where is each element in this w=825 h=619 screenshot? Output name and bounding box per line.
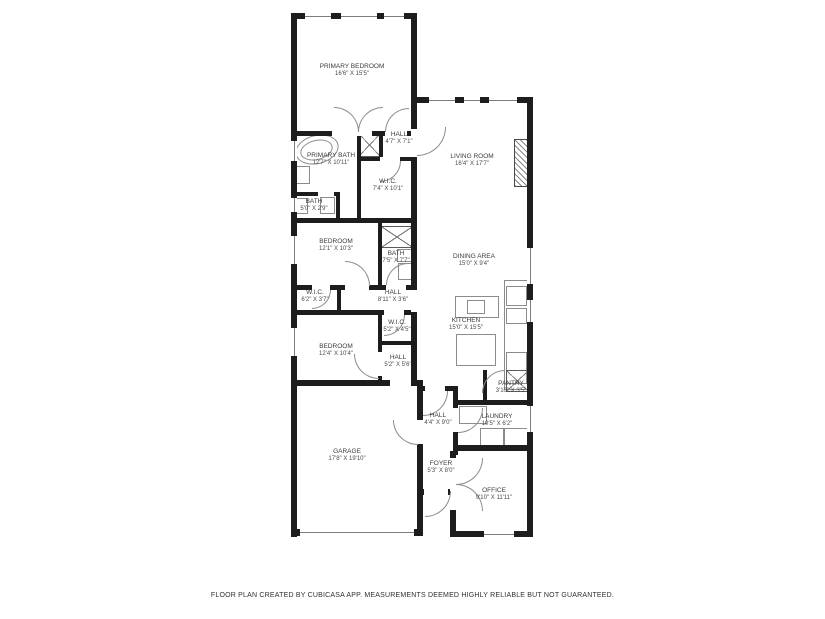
wall-segment	[411, 13, 417, 385]
room-dims: 12'4" X 10'4"	[319, 351, 353, 359]
room-label-wic-mid: W.I.C. 5'2" X 4'5"	[383, 319, 410, 335]
room-label-living-room: LIVING ROOM 16'4" X 17'7"	[450, 153, 493, 169]
room-name: PANTRY	[496, 380, 527, 388]
room-name: DINING AREA	[453, 253, 495, 261]
room-label-primary-bath: PRIMARY BATH 12'7" X 10'11"	[307, 152, 355, 168]
window	[429, 97, 455, 103]
room-name: BATH	[300, 198, 327, 206]
room-dims: 4'4" X 9'0"	[424, 420, 451, 428]
room-name: W.I.C.	[383, 319, 410, 327]
room-name: LIVING ROOM	[450, 153, 493, 161]
room-dims: 7'5" X 7'7"	[382, 258, 409, 266]
window	[291, 236, 297, 264]
room-dims: 12'1" X 10'3"	[319, 246, 353, 254]
room-label-bath-mid: BATH 7'5" X 7'7"	[382, 250, 409, 266]
room-dims: 17'8" X 19'10"	[328, 456, 365, 464]
room-name: HALL	[378, 289, 408, 297]
wall-segment	[291, 13, 297, 537]
kitchen-island	[456, 334, 496, 366]
window	[291, 198, 297, 212]
door-opening	[318, 192, 334, 196]
room-dims: 15'0" X 15'5"	[449, 325, 483, 333]
room-name: W.I.C.	[373, 178, 404, 186]
room-label-wic-primary: W.I.C. 7'4" X 10'1"	[373, 178, 404, 194]
door-arc	[334, 107, 359, 132]
room-name: HALL	[385, 131, 412, 139]
room-label-pantry: PANTRY 3'10" X 3'5"	[496, 380, 527, 396]
room-name: W.I.C.	[301, 289, 328, 297]
room-label-foyer: FOYER 5'3" X 8'0"	[427, 460, 454, 476]
shower	[381, 226, 413, 248]
room-dims: 3'10" X 3'5"	[496, 388, 527, 396]
room-label-primary-bedroom: PRIMARY BEDROOM 16'6" X 15'5"	[320, 63, 385, 79]
room-name: LAUNDRY	[482, 413, 513, 421]
disclaimer-text: FLOOR PLAN CREATED BY CUBICASA APP. MEAS…	[0, 592, 825, 599]
wall-segment	[379, 133, 383, 159]
window	[464, 97, 480, 103]
window	[291, 141, 297, 161]
room-name: PRIMARY BEDROOM	[320, 63, 385, 71]
room-dims: 16'4" X 17'7"	[450, 161, 493, 169]
room-label-bedroom-lower: BEDROOM 12'4" X 10'4"	[319, 343, 353, 359]
room-name: OFFICE	[476, 487, 512, 495]
room-name: FOYER	[427, 460, 454, 468]
door-arc	[393, 420, 418, 445]
room-name: BATH	[382, 250, 409, 258]
room-dims: 4'7" X 7'1"	[385, 139, 412, 147]
garage-door	[300, 529, 414, 536]
room-label-garage: GARAGE 17'8" X 19'10"	[328, 448, 365, 464]
room-dims: 12'7" X 10'11"	[307, 160, 355, 168]
door-arc	[385, 108, 409, 132]
window	[527, 406, 533, 432]
window	[384, 13, 404, 19]
door-arc	[417, 127, 446, 156]
window	[527, 300, 533, 322]
room-label-hall-bottom: HALL 4'4" X 9'0"	[424, 412, 451, 428]
room-label-hall-lower: HALL 5'2" X 5'6"	[384, 354, 411, 370]
room-dims: 8'11" X 3'6"	[378, 297, 408, 305]
room-label-laundry: LAUNDRY 10'5" X 6'2"	[482, 413, 513, 429]
door-arc	[354, 354, 379, 379]
window	[341, 13, 377, 19]
room-label-office: OFFICE 9'10" X 11'11"	[476, 487, 512, 503]
kitchen-appliance	[506, 286, 527, 306]
room-dims: 15'0" X 9'4"	[453, 261, 495, 269]
door-arc	[456, 458, 483, 485]
room-name: HALL	[424, 412, 451, 420]
washer	[480, 428, 504, 446]
room-name: KITCHEN	[449, 317, 483, 325]
window	[484, 531, 514, 537]
door-opening	[390, 380, 411, 386]
room-dims: 5'2" X 5'6"	[384, 362, 411, 370]
wall-segment	[378, 341, 415, 345]
floor-plan: PRIMARY BEDROOM 16'6" X 15'5" HALL 4'7" …	[0, 0, 825, 619]
room-dims: 5'0" X 2'9"	[300, 206, 327, 214]
room-dims: 5'3" X 8'0"	[427, 468, 454, 476]
kitchen-appliance	[506, 308, 527, 324]
window	[291, 328, 297, 356]
dryer	[504, 428, 528, 446]
room-name: PRIMARY BATH	[307, 152, 355, 160]
room-label-bedroom-mid: BEDROOM 12'1" X 10'3"	[319, 238, 353, 254]
window	[305, 13, 331, 19]
window	[527, 248, 533, 284]
shower	[358, 133, 381, 157]
wall-segment	[291, 218, 417, 223]
room-label-hall-mid: HALL 8'11" X 3'6"	[378, 289, 408, 305]
door-arc	[345, 261, 370, 286]
room-label-hall-upper: HALL 4'7" X 7'1"	[385, 131, 412, 147]
door-opening	[411, 290, 417, 312]
wall-segment	[357, 136, 361, 218]
room-name: GARAGE	[328, 448, 365, 456]
room-label-kitchen: KITCHEN 15'0" X 15'5"	[449, 317, 483, 333]
window	[489, 97, 517, 103]
room-dims: 16'6" X 15'5"	[320, 71, 385, 79]
room-dims: 6'2" X 3'7"	[301, 297, 328, 305]
door-arc	[358, 107, 383, 132]
room-name: BEDROOM	[319, 343, 353, 351]
wall-segment	[453, 400, 533, 405]
door-arc	[425, 491, 451, 517]
room-dims: 5'2" X 4'5"	[383, 327, 410, 335]
room-label-wic-left: W.I.C. 6'2" X 3'7"	[301, 289, 328, 305]
room-label-dining-area: DINING AREA 15'0" X 9'4"	[453, 253, 495, 269]
room-name: HALL	[384, 354, 411, 362]
room-label-bath-small: BATH 5'0" X 2'9"	[300, 198, 327, 214]
room-dims: 9'10" X 11'11"	[476, 495, 512, 503]
room-name: BEDROOM	[319, 238, 353, 246]
door-arc	[386, 263, 408, 285]
room-dims: 10'5" X 6'2"	[482, 421, 513, 429]
room-dims: 7'4" X 10'1"	[373, 186, 404, 194]
kitchen-sink	[467, 300, 485, 314]
wall-segment	[453, 445, 533, 451]
